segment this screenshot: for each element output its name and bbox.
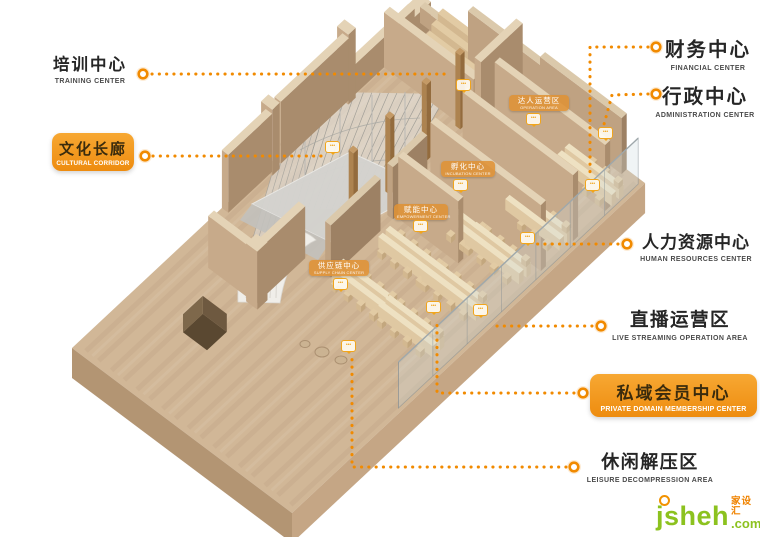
- label-cultural-corridor-zh: 文化长廊: [59, 138, 127, 159]
- map-pin-icon: [426, 301, 441, 313]
- label-administration-center: 行政中心 ADMINISTRATION CENTER: [650, 80, 760, 119]
- watermark-swirl-icon: [659, 495, 670, 506]
- tag-empowerment-center-zh: 赋能中心: [397, 206, 445, 214]
- label-live-streaming-area-en: LIVE STREAMING OPERATION AREA: [606, 335, 754, 342]
- map-pin-icon: [325, 141, 340, 153]
- label-administration-center-en: ADMINISTRATION CENTER: [650, 112, 760, 119]
- map-pin-icon: [526, 113, 541, 125]
- tag-supply-chain-center: 供应链中心 SUPPLY CHAIN CENTER: [309, 260, 369, 276]
- tag-supply-chain-center-zh: 供应链中心: [312, 262, 366, 270]
- watermark-tld: .com: [731, 517, 760, 530]
- label-live-streaming-area-zh: 直播运营区: [606, 306, 754, 332]
- tag-talent-operation-area: 达人运营区 OPERATION AREA: [509, 95, 569, 111]
- label-private-domain-center: 私域会员中心 PRIVATE DOMAIN MEMBERSHIP CENTER: [590, 374, 757, 417]
- tag-empowerment-center-en: EMPOWERMENT CENTER: [397, 214, 445, 219]
- office-floorplan-diagram: 培训中心 TRAINING CENTER 文化长廊 CULTURAL CORRI…: [0, 0, 760, 537]
- label-training-center-zh: 培训中心: [40, 51, 140, 75]
- label-administration-center-zh: 行政中心: [650, 80, 760, 109]
- label-leisure-area-zh: 休闲解压区: [574, 448, 726, 474]
- map-pin-icon: [598, 127, 613, 139]
- label-live-streaming-area: 直播运营区 LIVE STREAMING OPERATION AREA: [606, 306, 754, 342]
- map-pin-icon: [520, 232, 535, 244]
- label-hr-center-en: HUMAN RESOURCES CENTER: [634, 256, 758, 263]
- tag-incubation-center-en: INCUBATION CENTER: [444, 171, 492, 176]
- label-leisure-area-en: LEISURE DECOMPRESSION AREA: [574, 477, 726, 484]
- label-hr-center-zh: 人力资源中心: [634, 228, 758, 253]
- label-private-domain-center-en: PRIVATE DOMAIN MEMBERSHIP CENTER: [600, 406, 746, 413]
- tag-talent-operation-area-en: OPERATION AREA: [512, 105, 566, 110]
- label-hr-center: 人力资源中心 HUMAN RESOURCES CENTER: [634, 228, 758, 263]
- watermark-site-name: jsheh: [656, 503, 729, 530]
- map-pin-icon: [456, 79, 471, 91]
- tag-incubation-center: 孵化中心 INCUBATION CENTER: [441, 161, 495, 177]
- watermark-jsheh: jsheh 家设汇 .com: [656, 497, 760, 530]
- label-training-center-en: TRAINING CENTER: [40, 78, 140, 85]
- label-financial-center-zh: 财务中心: [658, 33, 758, 62]
- label-leisure-area: 休闲解压区 LEISURE DECOMPRESSION AREA: [574, 448, 726, 484]
- map-pin-icon: [341, 340, 356, 352]
- label-financial-center: 财务中心 FINANCIAL CENTER: [658, 33, 758, 72]
- map-pin-icon: [585, 179, 600, 191]
- map-pin-icon: [473, 304, 488, 316]
- map-pin-icon: [413, 220, 428, 232]
- map-pin-icon: [453, 179, 468, 191]
- tag-supply-chain-center-en: SUPPLY CHAIN CENTER: [312, 270, 366, 275]
- watermark-chinese: 家设汇: [731, 497, 760, 516]
- label-financial-center-en: FINANCIAL CENTER: [658, 65, 758, 72]
- label-cultural-corridor: 文化长廊 CULTURAL CORRIDOR: [52, 133, 134, 171]
- label-training-center: 培训中心 TRAINING CENTER: [40, 51, 140, 85]
- label-private-domain-center-zh: 私域会员中心: [617, 379, 731, 404]
- tag-incubation-center-zh: 孵化中心: [444, 163, 492, 171]
- tag-empowerment-center: 赋能中心 EMPOWERMENT CENTER: [394, 204, 448, 220]
- label-cultural-corridor-en: CULTURAL CORRIDOR: [56, 160, 129, 167]
- map-pin-icon: [333, 278, 348, 290]
- tag-talent-operation-area-zh: 达人运营区: [512, 97, 566, 105]
